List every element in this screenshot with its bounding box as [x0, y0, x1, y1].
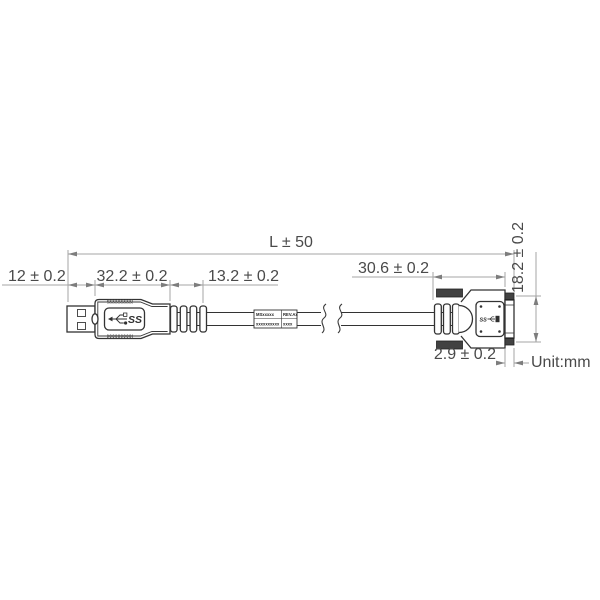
micro-b-plug	[505, 300, 514, 338]
usb-cable-dimension-drawing: SS MSxxxxx REV.Ax xxxxxxxxxx xxxx	[0, 0, 600, 600]
usb-a-grip-texture-top	[107, 300, 133, 304]
cable-label-serial: xxxxxxxxxx	[256, 321, 280, 326]
usb-a-shell-slot	[92, 314, 98, 324]
usb-a-grip-texture-bottom	[107, 335, 133, 339]
dim-screw-tip-label: 2.9 ± 0.2	[434, 346, 496, 363]
face-plate-screw-dot	[480, 305, 483, 308]
face-plate-screw-dot	[480, 330, 483, 333]
micro-b-strain-relief	[435, 304, 460, 334]
unit-label: Unit:mm	[531, 354, 591, 371]
cable-label: MSxxxxx REV.Ax xxxxxxxxxx xxxx	[254, 310, 298, 328]
dim-usb-a-body-label: 32.2 ± 0.2	[96, 268, 167, 285]
dim-usb-a-shell-label: 12 ± 0.2	[8, 268, 66, 285]
technical-drawing-page: SS MSxxxxx REV.Ax xxxxxxxxxx xxxx	[0, 0, 600, 600]
cable-label-revision: REV.Ax	[283, 312, 298, 317]
micro-b-logo-ss-text: SS	[480, 317, 488, 323]
usb-a-logo-ss-text: SS	[128, 314, 142, 326]
screw-tip-bottom	[505, 339, 514, 346]
face-plate-screw-dot	[498, 305, 501, 308]
usb-a-strain-relief	[170, 306, 208, 332]
dim-overall-length-label: L ± 50	[269, 234, 313, 251]
dim-micro-b-height-label: 18.2 ± 0.2	[510, 222, 527, 293]
face-plate-screw-dot	[498, 330, 501, 333]
micro-b-connector: SS	[435, 289, 515, 349]
thumbscrew-top	[437, 289, 463, 297]
dim-usb-a-boot-label: 13.2 ± 0.2	[208, 268, 279, 285]
cable-break-symbol	[322, 304, 342, 333]
usb-a-connector: SS	[67, 300, 208, 339]
dim-micro-b-body-label: 30.6 ± 0.2	[358, 260, 429, 277]
dim-screw-tip-lines	[496, 348, 529, 367]
cable-label-lot: xxxx	[283, 321, 293, 326]
cable-label-part-number: MSxxxxx	[256, 312, 275, 317]
